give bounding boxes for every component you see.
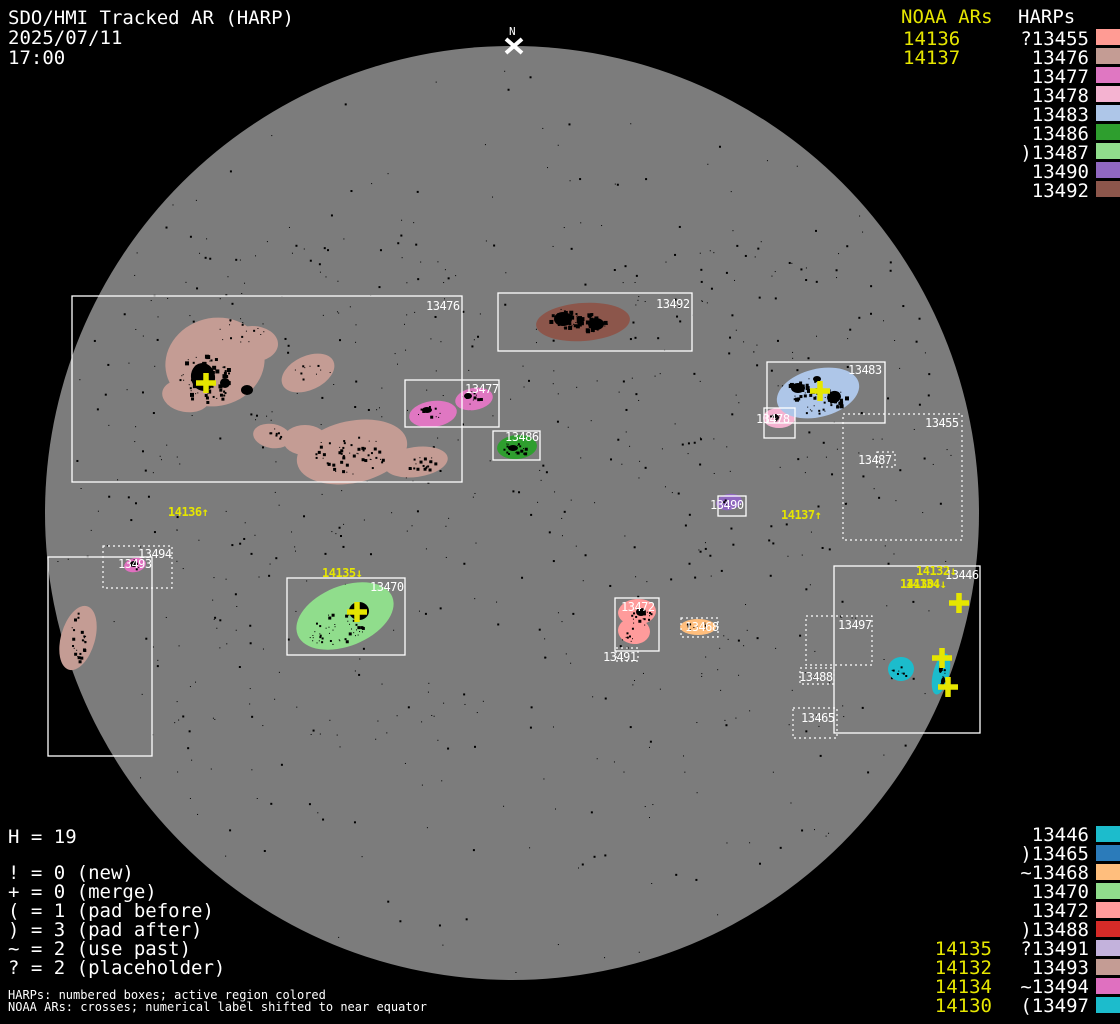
harp-legend-item-13492: 13492 — [900, 182, 1089, 201]
harp-color-swatch-13494 — [1096, 978, 1120, 994]
footnote-1: NOAA ARs: crosses; numerical label shift… — [8, 1001, 427, 1013]
sunspot-umbra — [588, 318, 604, 330]
page-title: SDO/HMI Tracked AR (HARP) — [8, 8, 294, 28]
noaa-label-14132: 14132↓ — [916, 564, 956, 578]
harp-color-swatch-13497 — [1096, 997, 1120, 1013]
date-label: 2025/07/11 — [8, 28, 122, 48]
harp-color-swatch-13468 — [1096, 864, 1120, 880]
sunspot-umbra — [241, 385, 253, 395]
harp-box-label-13488: 13488 — [799, 670, 833, 684]
north-label: N — [509, 25, 516, 38]
harp-count: H = 19 — [8, 828, 77, 847]
prefix-code-line-5: ? = 2 (placeholder) — [8, 959, 225, 978]
harp-color-swatch-13490 — [1096, 162, 1120, 178]
harp-color-swatch-13486 — [1096, 124, 1120, 140]
noaa-ars-header: NOAA ARs — [901, 8, 993, 27]
harp-box-label-13476: 13476 — [426, 299, 460, 313]
harp-box-label-13455: 13455 — [925, 416, 959, 430]
harp-box-label-13472: 13472 — [621, 600, 655, 614]
harp-box-label-13486: 13486 — [505, 430, 539, 444]
harp-box-label-13497: 13497 — [838, 618, 872, 632]
harp-color-swatch-13493 — [1096, 959, 1120, 975]
harp-color-swatch-13488 — [1096, 921, 1120, 937]
harp-box-label-13491: 13491 — [603, 650, 637, 664]
harp-color-swatch-13483 — [1096, 105, 1120, 121]
harp-box-label-13483: 13483 — [848, 363, 882, 377]
harp-box-label-13477: 13477 — [465, 382, 499, 396]
sunspot-umbra — [508, 445, 518, 451]
sunspot-umbra — [554, 312, 572, 326]
harp-color-swatch-13491 — [1096, 940, 1120, 956]
harp-box-label-13478: 13478 — [756, 412, 790, 426]
harp-box-label-13490: 13490 — [710, 498, 744, 512]
noaa-label-14137: 14137↑ — [781, 508, 821, 522]
noaa-label-14135: 14135↓ — [322, 566, 362, 580]
harps-header: HARPs — [1018, 8, 1075, 27]
harp-color-swatch-13472 — [1096, 902, 1120, 918]
harp-color-swatch-13470 — [1096, 883, 1120, 899]
time-label: 17:00 — [8, 48, 65, 68]
sunspot-umbra — [791, 383, 805, 393]
harp-box-label-13487: 13487 — [858, 453, 892, 467]
harp-color-swatch-13477 — [1096, 67, 1120, 83]
harp-box-label-13493: 13493 — [118, 557, 152, 571]
harp-color-swatch-13455 — [1096, 29, 1120, 45]
sunspot-umbra — [422, 407, 432, 413]
harp-box-label-13465: 13465 — [801, 711, 835, 725]
noaa-label-14134: 14134↓ — [906, 577, 946, 591]
harp-color-swatch-13446 — [1096, 826, 1120, 842]
harp-color-swatch-13478 — [1096, 86, 1120, 102]
harp-color-swatch-13465 — [1096, 845, 1120, 861]
harp-map-stage: 1347613492134771348613483134781345513487… — [0, 0, 1120, 1024]
harp-color-swatch-13492 — [1096, 181, 1120, 197]
harp-box-label-13492: 13492 — [656, 297, 690, 311]
harp-box-label-13468: 13468 — [685, 620, 719, 634]
harp-box-label-13470: 13470 — [370, 580, 404, 594]
noaa-label-14136: 14136↑ — [168, 505, 208, 519]
noaa-ar-item-14130: 14130 — [812, 997, 992, 1016]
harp-color-swatch-13487 — [1096, 143, 1120, 159]
harp-color-swatch-13476 — [1096, 48, 1120, 64]
sunspot-umbra — [220, 378, 230, 388]
